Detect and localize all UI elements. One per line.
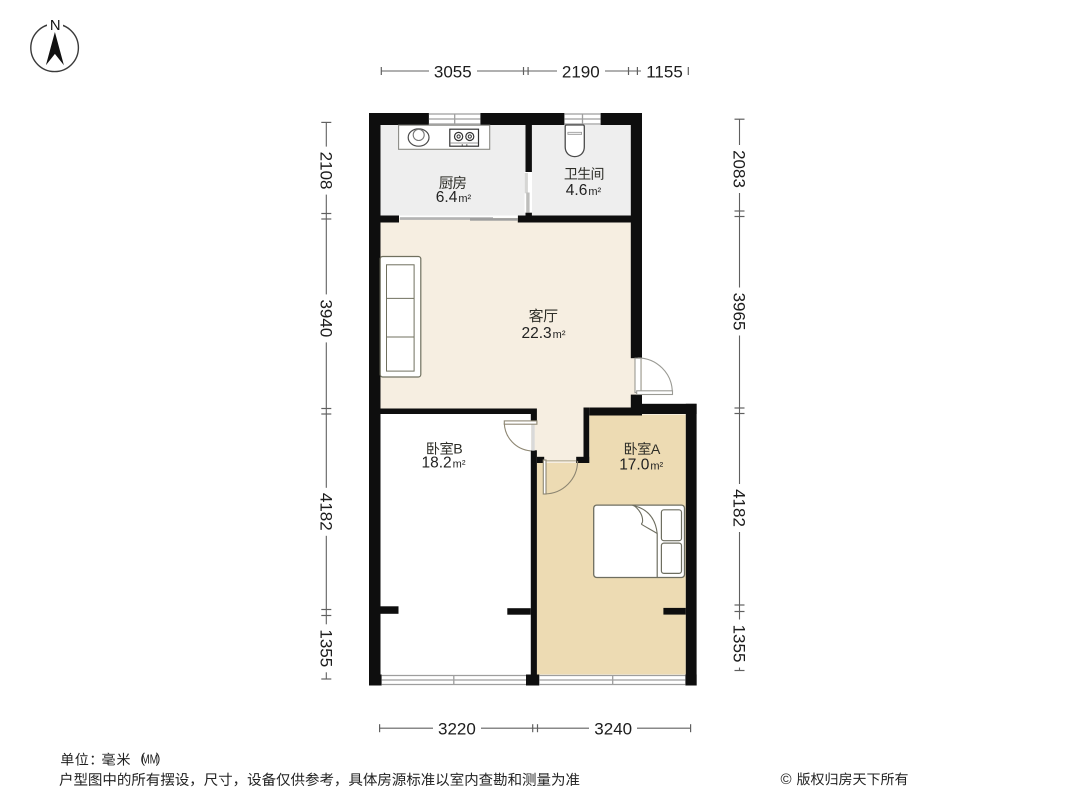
svg-text:©: © bbox=[781, 771, 792, 788]
svg-text:MM: MM bbox=[141, 752, 158, 767]
svg-text:3940: 3940 bbox=[316, 299, 335, 337]
svg-text:1155: 1155 bbox=[646, 62, 683, 81]
svg-text:B: B bbox=[453, 442, 462, 458]
svg-text:2083: 2083 bbox=[729, 150, 748, 188]
svg-text:2190: 2190 bbox=[562, 62, 600, 81]
svg-text:3220: 3220 bbox=[438, 720, 476, 739]
svg-text:1355: 1355 bbox=[316, 629, 335, 667]
svg-text:3055: 3055 bbox=[434, 62, 472, 81]
svg-text:2108: 2108 bbox=[316, 152, 335, 190]
svg-text:3965: 3965 bbox=[729, 293, 748, 331]
svg-text:4182: 4182 bbox=[316, 493, 335, 531]
svg-text:1355: 1355 bbox=[729, 625, 748, 663]
svg-text:N: N bbox=[50, 18, 61, 34]
svg-text:4182: 4182 bbox=[729, 489, 748, 527]
svg-text:A: A bbox=[651, 442, 661, 458]
svg-text:3240: 3240 bbox=[594, 720, 632, 739]
